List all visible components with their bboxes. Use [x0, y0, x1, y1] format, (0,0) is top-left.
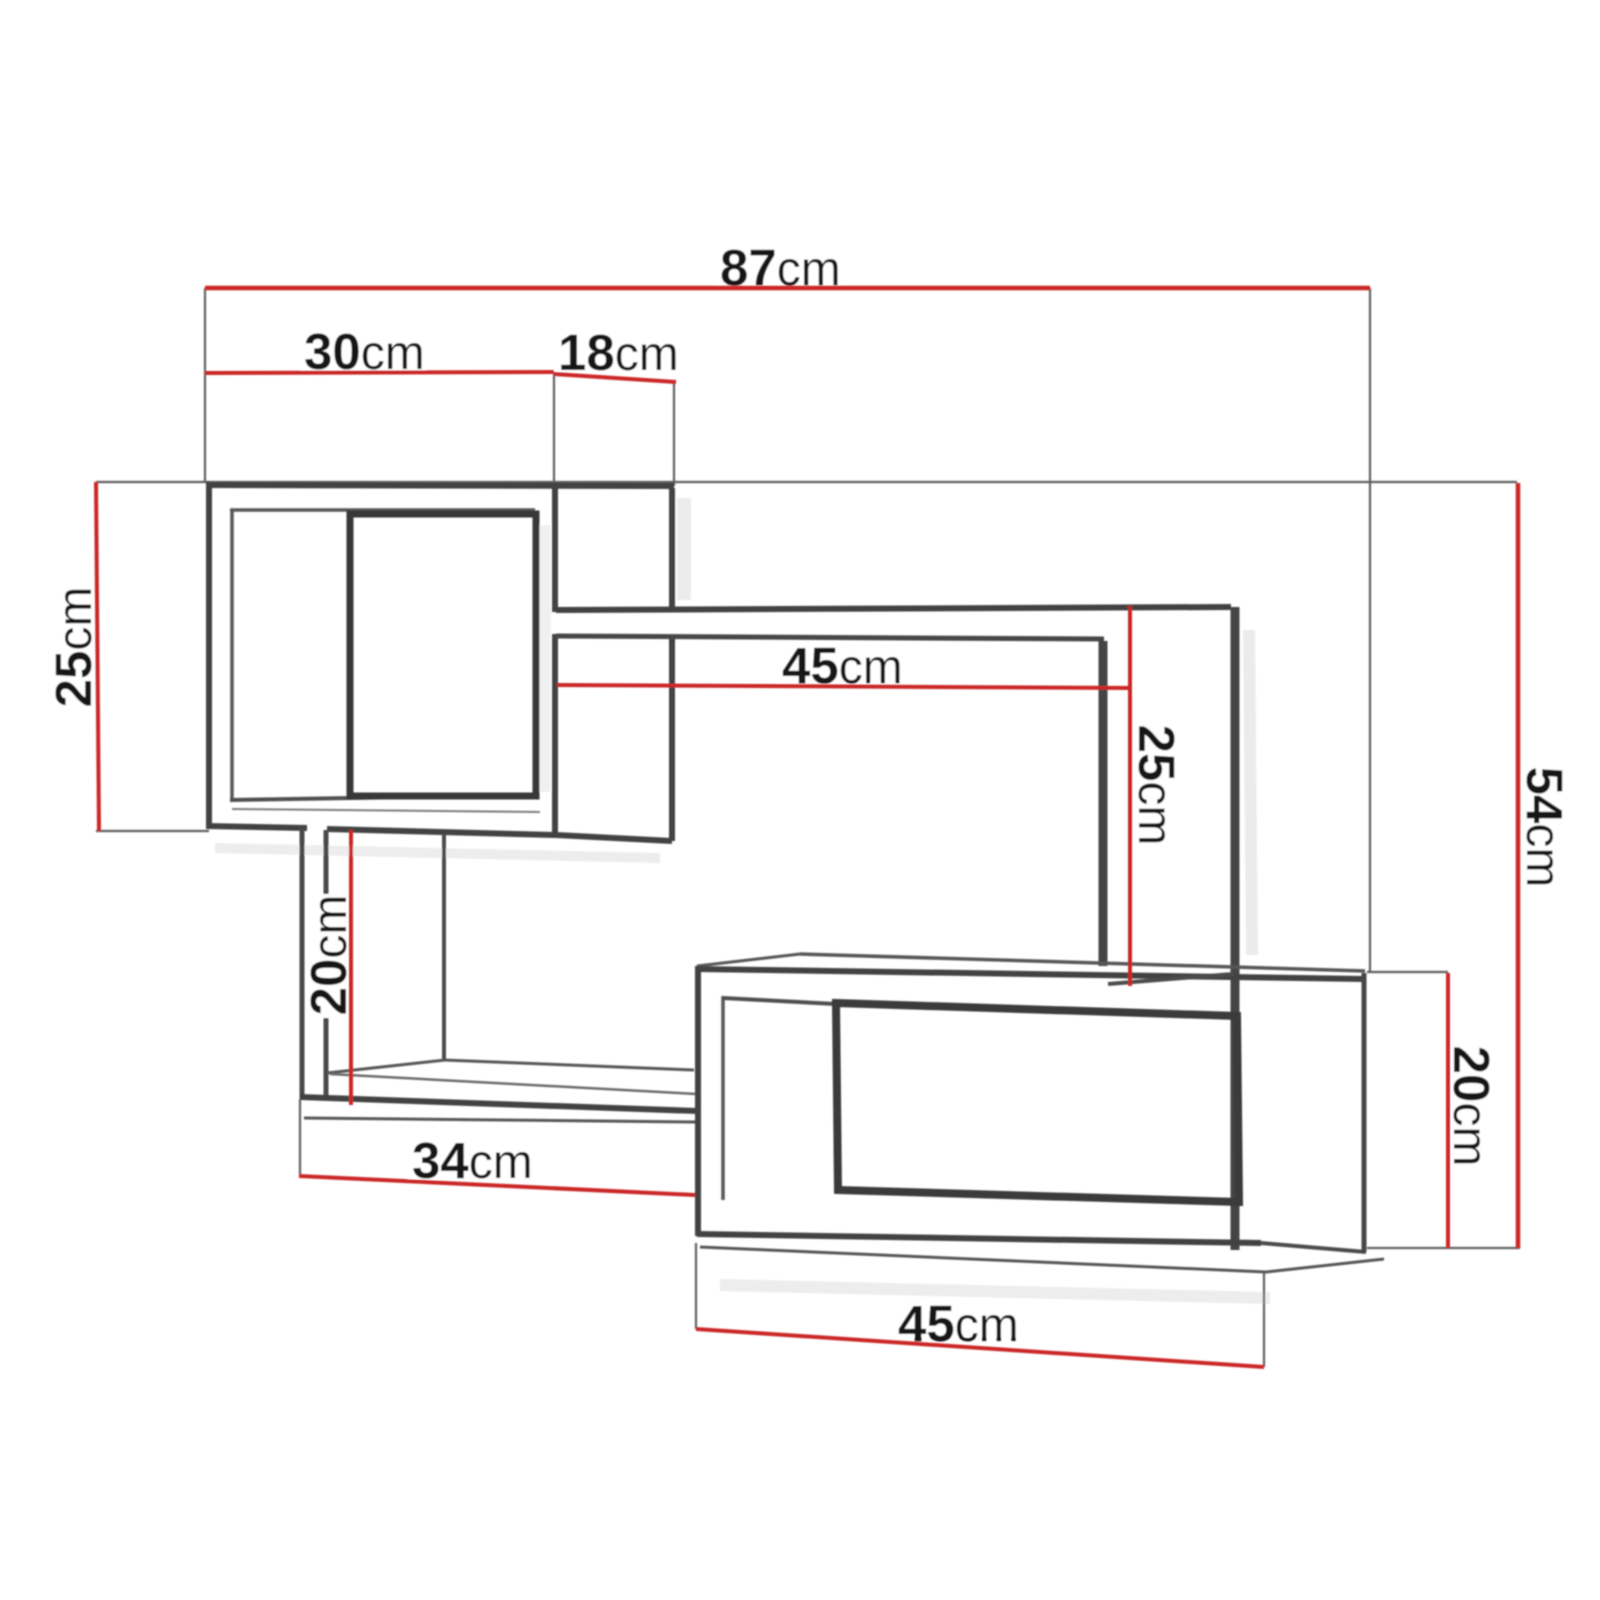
svg-text:20cm: 20cm [1443, 1046, 1500, 1167]
svg-text:34cm: 34cm [412, 1132, 533, 1189]
svg-text:20cm: 20cm [300, 895, 357, 1016]
svg-text:25cm: 25cm [1128, 725, 1185, 846]
svg-text:45cm: 45cm [898, 1295, 1019, 1352]
svg-text:25cm: 25cm [45, 587, 102, 708]
svg-text:18cm: 18cm [558, 324, 679, 381]
svg-text:45cm: 45cm [782, 637, 903, 694]
svg-text:30cm: 30cm [304, 323, 425, 380]
svg-text:87cm: 87cm [720, 239, 841, 296]
svg-text:54cm: 54cm [1516, 767, 1573, 888]
